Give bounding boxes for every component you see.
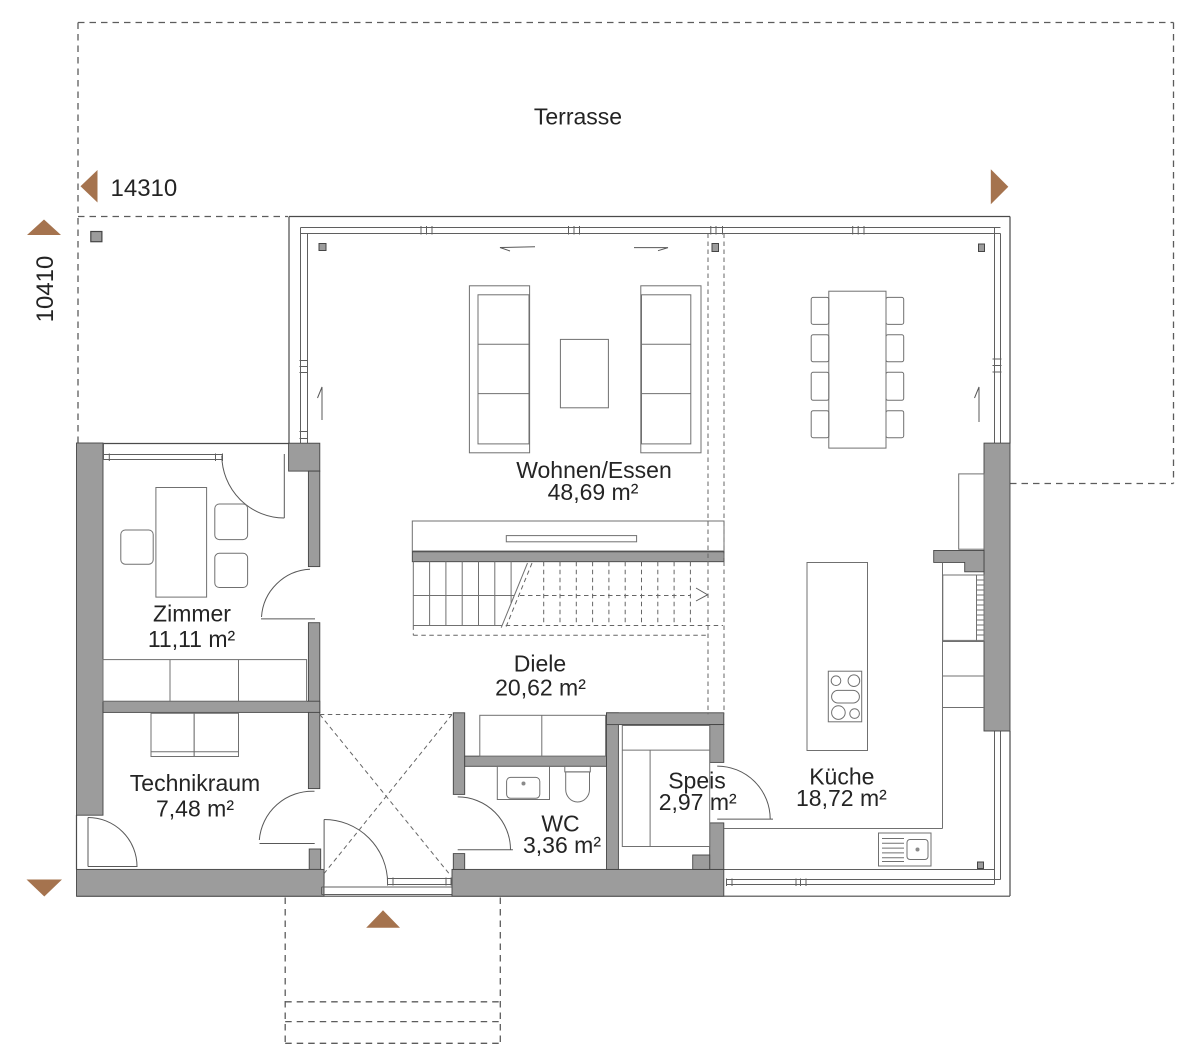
svg-text:3,36 m²: 3,36 m² bbox=[523, 832, 601, 858]
svg-text:20,62 m²: 20,62 m² bbox=[495, 675, 586, 701]
svg-text:Terrasse: Terrasse bbox=[534, 103, 622, 129]
svg-text:10410: 10410 bbox=[32, 256, 59, 323]
svg-text:18,72 m²: 18,72 m² bbox=[796, 785, 887, 811]
svg-text:Technikraum: Technikraum bbox=[130, 770, 260, 796]
svg-text:48,69 m²: 48,69 m² bbox=[548, 479, 639, 505]
svg-text:11,11 m²: 11,11 m² bbox=[148, 626, 236, 652]
svg-text:Diele: Diele bbox=[514, 650, 566, 676]
svg-text:7,48 m²: 7,48 m² bbox=[156, 796, 234, 822]
svg-text:14310: 14310 bbox=[111, 175, 178, 202]
svg-text:2,97 m²: 2,97 m² bbox=[659, 789, 737, 815]
svg-text:Zimmer: Zimmer bbox=[153, 601, 231, 627]
